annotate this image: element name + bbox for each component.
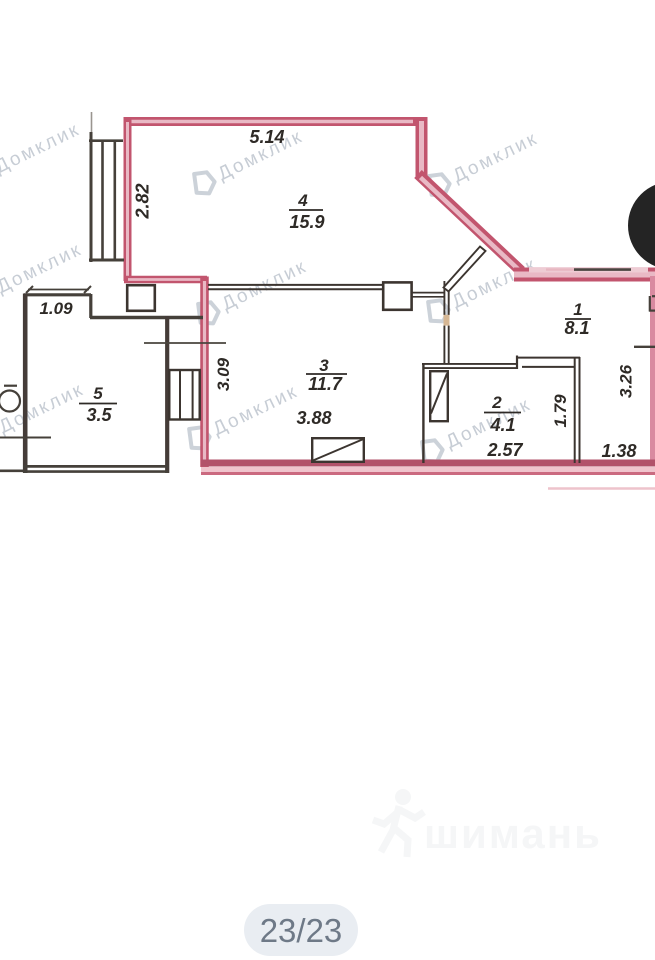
svg-text:11.7: 11.7 [308,374,343,394]
svg-text:8.1: 8.1 [564,318,589,338]
svg-text:23/23: 23/23 [260,912,343,949]
svg-text:1.79: 1.79 [551,394,570,428]
svg-text:1.38: 1.38 [601,441,636,461]
svg-text:1.09: 1.09 [39,299,73,318]
svg-text:2: 2 [491,393,502,412]
svg-text:3.5: 3.5 [86,405,112,425]
svg-text:5: 5 [93,384,103,403]
svg-text:3.26: 3.26 [617,364,636,398]
svg-text:2.57: 2.57 [486,440,523,460]
svg-text:шимань: шимань [424,810,602,857]
svg-text:15.9: 15.9 [289,212,324,232]
svg-text:3: 3 [319,356,329,375]
svg-text:3.88: 3.88 [296,408,331,428]
svg-text:3.09: 3.09 [214,357,233,391]
svg-text:4: 4 [297,191,308,210]
svg-text:5.14: 5.14 [249,127,284,147]
svg-text:4.1: 4.1 [489,415,515,435]
svg-text:2.82: 2.82 [133,183,153,219]
svg-text:1: 1 [573,300,582,319]
